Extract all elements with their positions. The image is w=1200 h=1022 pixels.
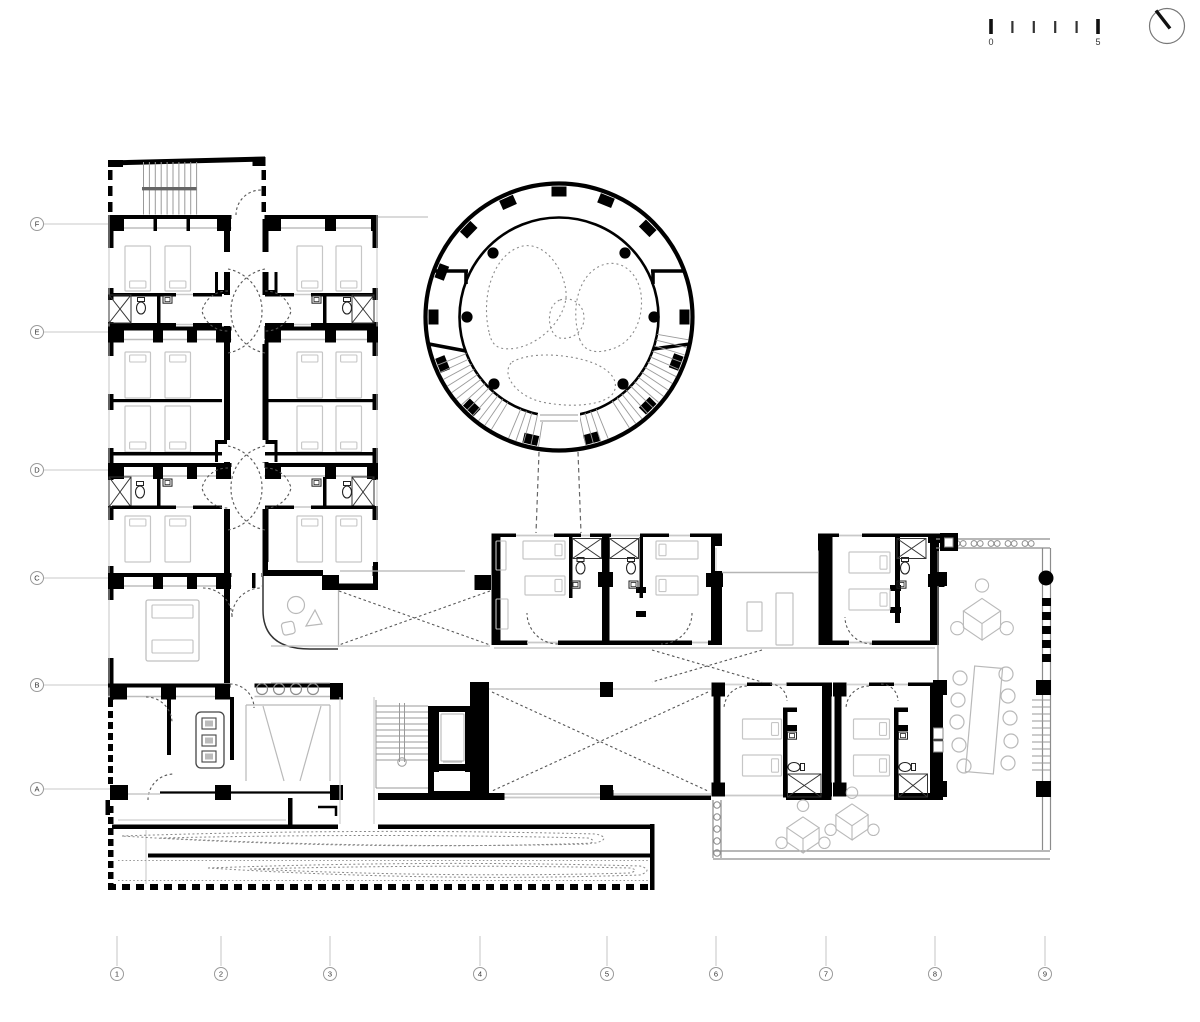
svg-text:5: 5 xyxy=(1095,37,1100,47)
svg-text:2: 2 xyxy=(219,970,223,979)
svg-text:4: 4 xyxy=(478,970,482,979)
svg-text:9: 9 xyxy=(1043,970,1047,979)
svg-text:1: 1 xyxy=(115,970,119,979)
svg-text:0: 0 xyxy=(988,37,993,47)
svg-text:5: 5 xyxy=(605,970,609,979)
svg-text:E: E xyxy=(34,328,39,337)
svg-text:F: F xyxy=(35,220,40,229)
svg-text:7: 7 xyxy=(824,970,828,979)
svg-text:8: 8 xyxy=(933,970,937,979)
svg-text:6: 6 xyxy=(714,970,718,979)
svg-text:A: A xyxy=(34,785,39,794)
svg-text:C: C xyxy=(34,574,40,583)
svg-text:B: B xyxy=(34,681,39,690)
svg-text:D: D xyxy=(34,466,40,475)
svg-text:3: 3 xyxy=(328,970,332,979)
